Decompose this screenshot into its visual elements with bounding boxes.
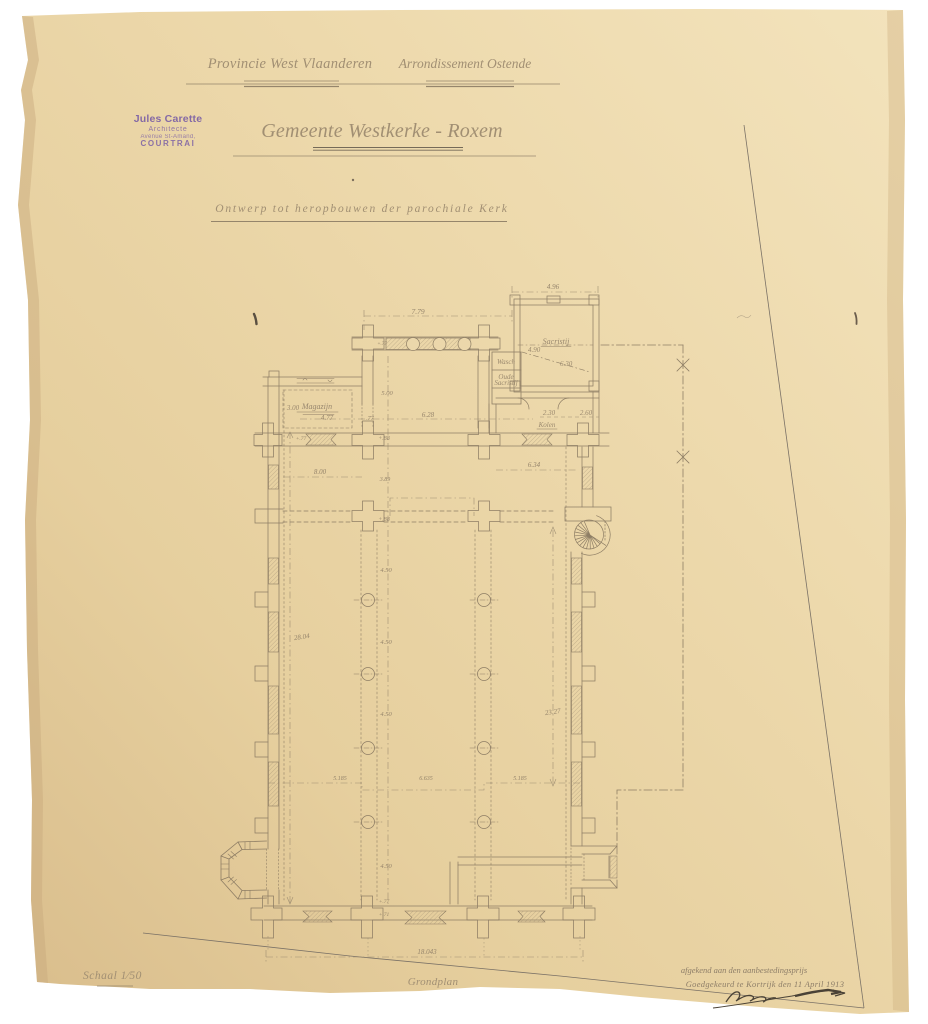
svg-text:+.88: +.88 — [378, 517, 390, 523]
svg-text:6.28: 6.28 — [422, 411, 435, 419]
svg-text:7.79: 7.79 — [411, 307, 424, 316]
svg-text:4.50: 4.50 — [380, 567, 392, 574]
svg-text:Arrondissement Ostende: Arrondissement Ostende — [398, 56, 532, 71]
svg-text:2.60: 2.60 — [580, 409, 593, 417]
svg-text:Wasch: Wasch — [497, 358, 516, 366]
svg-text:6.635: 6.635 — [419, 776, 433, 782]
svg-text:+.71: +.71 — [379, 912, 390, 918]
svg-text:Architecte: Architecte — [148, 126, 187, 133]
svg-text:+.77: +.77 — [379, 899, 390, 905]
svg-text:4.50: 4.50 — [380, 639, 392, 646]
svg-text:Magazijn: Magazijn — [301, 402, 332, 411]
svg-text:5.185: 5.185 — [333, 776, 347, 782]
svg-text:Sacristij: Sacristij — [543, 337, 570, 346]
svg-text:Kolen: Kolen — [538, 421, 556, 429]
svg-text:+.77: +.77 — [296, 436, 307, 442]
svg-text:3.89: 3.89 — [379, 477, 391, 483]
svg-text:Provincie West Vlaanderen: Provincie West Vlaanderen — [207, 56, 373, 72]
svg-text:18.043: 18.043 — [417, 948, 437, 956]
svg-text:Sacristij: Sacristij — [494, 379, 517, 387]
svg-text:+.88: +.88 — [378, 436, 390, 442]
svg-text:4.96: 4.96 — [547, 283, 560, 291]
svg-text:.77: .77 — [366, 416, 375, 422]
svg-text:afgekend aan den aanbestedings: afgekend aan den aanbestedingsprijs — [681, 965, 808, 975]
svg-text:COURTRAI: COURTRAI — [140, 139, 195, 148]
svg-text:+.77: +.77 — [377, 342, 387, 347]
svg-text:8.00: 8.00 — [314, 468, 327, 476]
svg-text:2.30: 2.30 — [543, 409, 556, 417]
svg-text:Grondplan: Grondplan — [408, 976, 459, 988]
svg-text:3.00: 3.00 — [286, 404, 300, 412]
svg-text:Gemeente Westkerke - Roxem: Gemeente Westkerke - Roxem — [261, 120, 503, 142]
svg-text:Ontwerp tot heropbouwen der pa: Ontwerp tot heropbouwen der parochiale K… — [215, 203, 508, 215]
svg-text:Jules Carette: Jules Carette — [134, 113, 203, 125]
svg-text:4.50: 4.50 — [380, 863, 392, 870]
svg-text:4.90: 4.90 — [528, 346, 541, 354]
svg-text:6.30: 6.30 — [560, 360, 573, 368]
svg-text:4.50: 4.50 — [380, 711, 392, 718]
svg-text:Schaal 1⁄50: Schaal 1⁄50 — [83, 970, 142, 982]
svg-text:5.00: 5.00 — [381, 390, 393, 397]
svg-text:6.34: 6.34 — [528, 461, 541, 469]
svg-text:4.77: 4.77 — [321, 414, 334, 422]
svg-text:Goedgekeurd te Kortrijk den 11: Goedgekeurd te Kortrijk den 11 April 191… — [686, 979, 845, 989]
svg-text:5.185: 5.185 — [513, 776, 527, 782]
